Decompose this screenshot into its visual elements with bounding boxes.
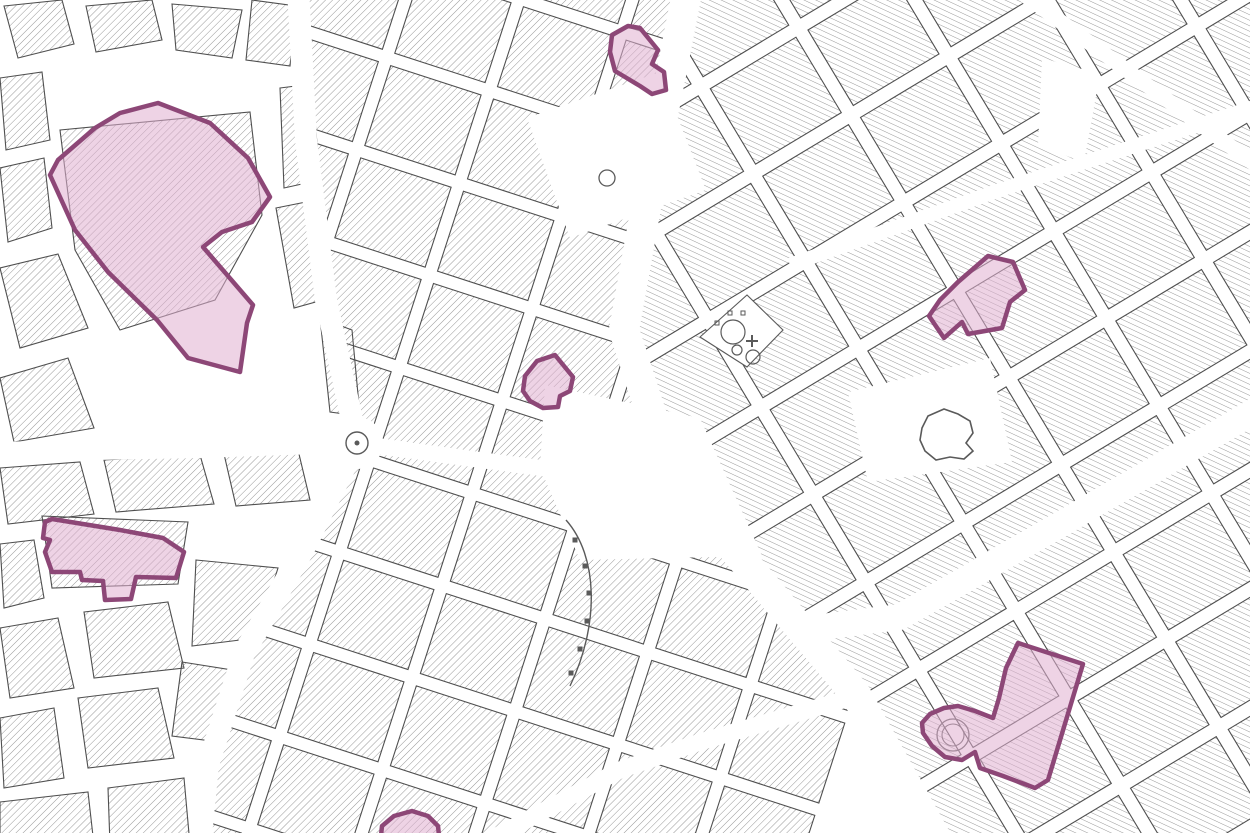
crescent-dot (587, 591, 592, 596)
monument-circle (599, 170, 615, 186)
map-canvas[interactable] (0, 0, 1250, 833)
crescent-dot (583, 564, 588, 569)
crescent-dot (578, 647, 583, 652)
crescent-dot (569, 671, 574, 676)
city-block (108, 778, 190, 833)
city-block (172, 4, 242, 58)
crescent-dot (585, 619, 590, 624)
city-block (0, 462, 94, 524)
city-block (0, 708, 64, 788)
city-block (78, 688, 174, 768)
map-viewport (0, 0, 1250, 833)
roundabout-center-dot (355, 441, 360, 446)
crescent-dot (573, 538, 578, 543)
street (0, 443, 345, 452)
city-block (104, 455, 214, 512)
city-block (84, 602, 184, 678)
city-block (0, 72, 50, 150)
city-block (224, 450, 310, 506)
city-block (0, 158, 52, 242)
